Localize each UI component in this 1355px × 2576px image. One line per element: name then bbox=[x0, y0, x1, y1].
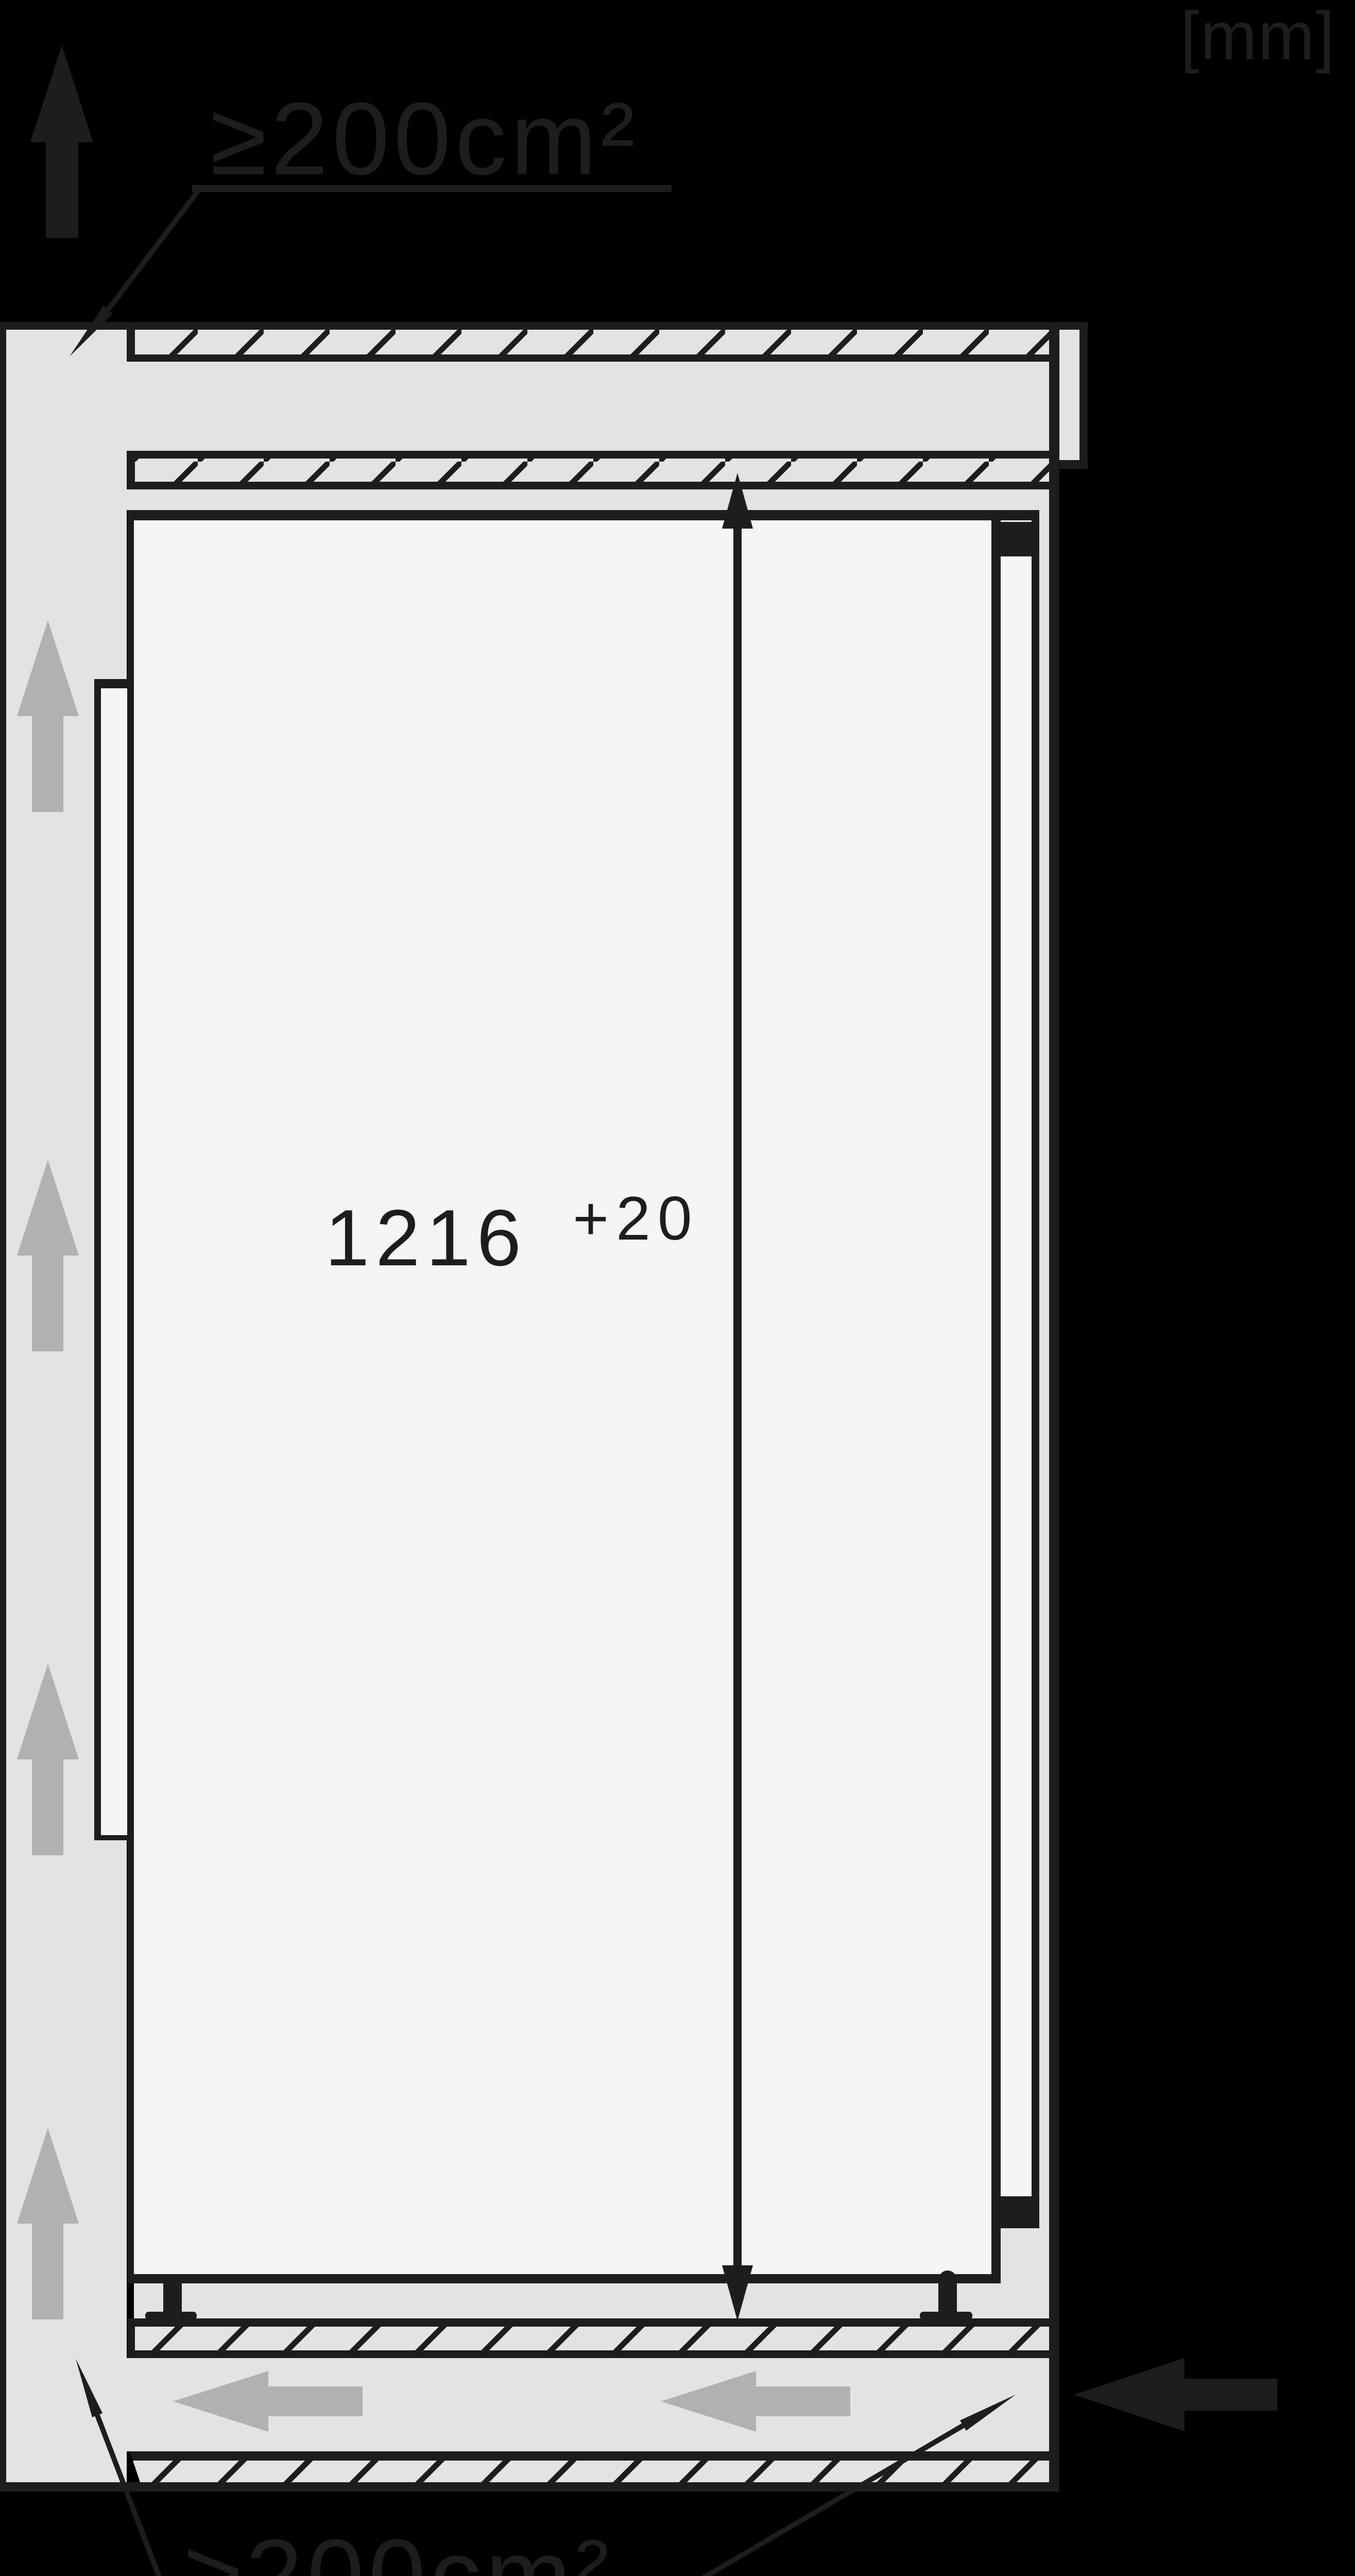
dimension-line bbox=[733, 515, 742, 2277]
duct-spacer-top bbox=[994, 522, 1039, 556]
top-panel-bottom-edge bbox=[127, 354, 1049, 362]
duct-spacer-bottom bbox=[994, 2196, 1039, 2228]
top-right-filler-strip bbox=[1059, 330, 1079, 460]
niche-floor-hatch bbox=[127, 2327, 1049, 2350]
niche-ceiling-hatch bbox=[127, 459, 1049, 482]
exhaust-air-arrow-icon bbox=[30, 45, 93, 238]
screenshot-root: { "diagram": { "kind": "appliance-instal… bbox=[0, 0, 1355, 2576]
plinth-panel-hatch bbox=[133, 2461, 1049, 2482]
door-panel-bottom-edge bbox=[94, 1835, 127, 1840]
rear-foot-stem bbox=[938, 2281, 957, 2313]
top-panel-hatch bbox=[127, 330, 1049, 354]
niche-ceiling-top-edge bbox=[127, 451, 1049, 459]
niche-floor-bottom-edge bbox=[127, 2350, 1049, 2358]
front-foot-plate bbox=[145, 2312, 197, 2320]
cabinet-front-wall-main bbox=[1049, 330, 1059, 2492]
appliance-rear-air-duct bbox=[1001, 520, 1032, 2196]
duct-inner-line bbox=[1032, 510, 1039, 2228]
niche-height-value: 1216 bbox=[325, 1193, 527, 1282]
gap-between-top-panels bbox=[127, 361, 1049, 451]
niche-height-tolerance: +20 bbox=[573, 1184, 699, 1253]
niche-floor-top-edge bbox=[127, 2318, 1049, 2327]
top-vent-leader-line bbox=[108, 191, 198, 310]
space-below-appliance bbox=[134, 2283, 1039, 2319]
front-foot-stem bbox=[163, 2281, 182, 2313]
door-panel-outer-edge bbox=[94, 679, 101, 1840]
plinth-void bbox=[6, 2358, 1049, 2451]
bottom-vent-label: ≥200cm² bbox=[185, 2518, 614, 2576]
top-panel-left-cap bbox=[127, 330, 135, 362]
appliance-bottom-edge bbox=[127, 2274, 1001, 2283]
intake-air-arrow-icon bbox=[1074, 2358, 1277, 2431]
rear-spacer-strip bbox=[1039, 489, 1049, 2319]
top-vent-label: ≥200cm² bbox=[210, 81, 639, 196]
units-label: [mm] bbox=[1180, 0, 1335, 74]
door-panel-face bbox=[101, 688, 127, 1835]
appliance-interior bbox=[134, 520, 991, 2274]
niche-ceiling-left-cap bbox=[127, 451, 135, 489]
appliance-right-edge bbox=[991, 510, 1001, 2283]
installation-diagram: ≥200cm² ≥200cm² 1216 +20 [mm] bbox=[0, 0, 1355, 2576]
niche-headspace bbox=[127, 489, 1049, 510]
rear-foot-plate bbox=[920, 2312, 972, 2320]
appliance-top-edge bbox=[127, 510, 1039, 520]
cabinet-rear-wall bbox=[0, 322, 6, 2492]
cabinet-bottom-line bbox=[0, 2482, 1059, 2492]
appliance-left-edge bbox=[127, 510, 134, 2283]
cabinet-front-wall-upper bbox=[1079, 322, 1088, 469]
diagram-canvas: ≥200cm² ≥200cm² 1216 +20 [mm] bbox=[0, 0, 1355, 2576]
space-below-rear-bracket bbox=[1001, 2228, 1039, 2285]
niche-ceiling-bottom-edge bbox=[127, 482, 1049, 489]
niche-floor-left-cap bbox=[127, 2318, 135, 2358]
cabinet-top-line bbox=[0, 322, 1088, 330]
door-panel-top-edge bbox=[94, 679, 127, 688]
